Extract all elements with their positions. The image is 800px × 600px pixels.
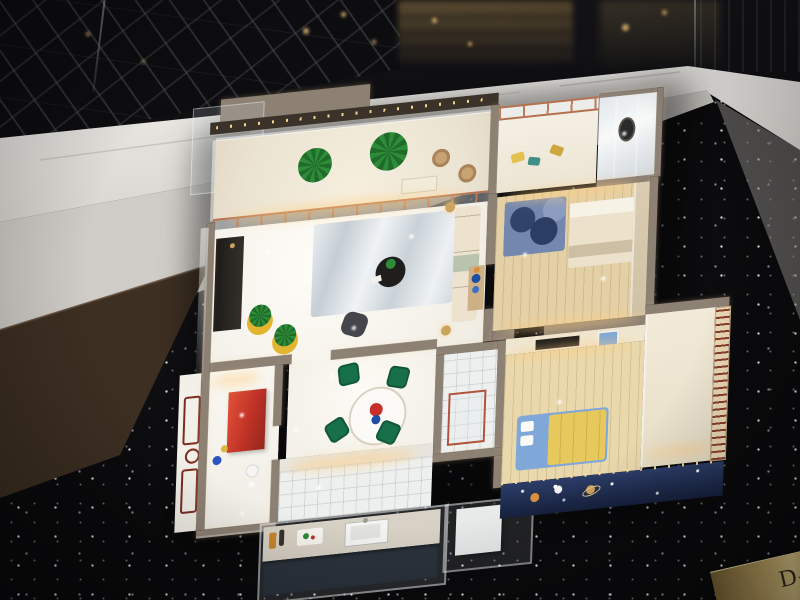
unit-plaque-label: D—	[777, 558, 800, 595]
master-blue-rug	[503, 196, 567, 257]
pillow-teal	[527, 157, 540, 166]
photo-canvas: D—	[0, 0, 800, 600]
kids-bed-pillow	[521, 421, 534, 432]
cutting-board	[297, 527, 323, 546]
door-ornament-rect	[182, 395, 201, 445]
red-lacquer-cabinet	[227, 388, 267, 453]
entry-east-wall	[273, 365, 283, 426]
apartment-model	[196, 87, 668, 539]
tv-console	[213, 236, 244, 332]
amber-bottle	[269, 532, 277, 549]
yellow-blanket	[547, 409, 606, 466]
white-cabinet-cube	[455, 504, 502, 555]
copper-shower-frame	[447, 389, 487, 445]
dark-bottle	[279, 529, 285, 546]
door-ornament-rect	[180, 468, 198, 514]
kids-bed-pillow	[520, 435, 533, 446]
